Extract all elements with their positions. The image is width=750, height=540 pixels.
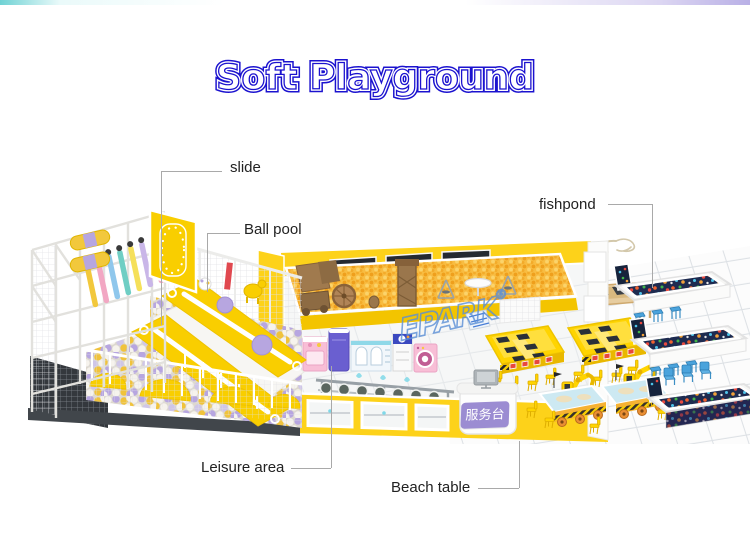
registered-mark-icon: ® — [494, 286, 509, 304]
callout-leisure-area-line-h — [291, 468, 331, 469]
callout-fishpond: fishpond — [539, 196, 596, 213]
callout-beach-table: Beach table — [391, 479, 470, 496]
callout-fishpond-line-h — [608, 204, 652, 205]
callout-leisure-area: Leisure area — [201, 459, 284, 476]
callout-slide-line-h — [161, 171, 222, 172]
callout-slide: slide — [230, 159, 261, 176]
callout-ball-pool-line-v — [207, 233, 208, 292]
desk-monitor — [474, 370, 498, 388]
tower-panel — [150, 210, 196, 292]
callout-ball-pool: Ball pool — [244, 221, 302, 238]
page: Soft Playground Soft Playground Soft Pla… — [0, 0, 750, 540]
callout-beach-table-line-v — [519, 441, 520, 488]
ball-pool-area — [28, 210, 306, 436]
playground-illustration — [0, 0, 750, 540]
callout-slide-line-v — [161, 171, 162, 325]
callout-beach-table-line-h — [478, 488, 519, 489]
callout-fishpond-line-v — [652, 204, 653, 288]
service-desk-sign: 服务台 — [461, 401, 510, 429]
callout-leisure-area-line-v — [331, 366, 332, 468]
callout-ball-pool-line-h — [207, 233, 240, 234]
